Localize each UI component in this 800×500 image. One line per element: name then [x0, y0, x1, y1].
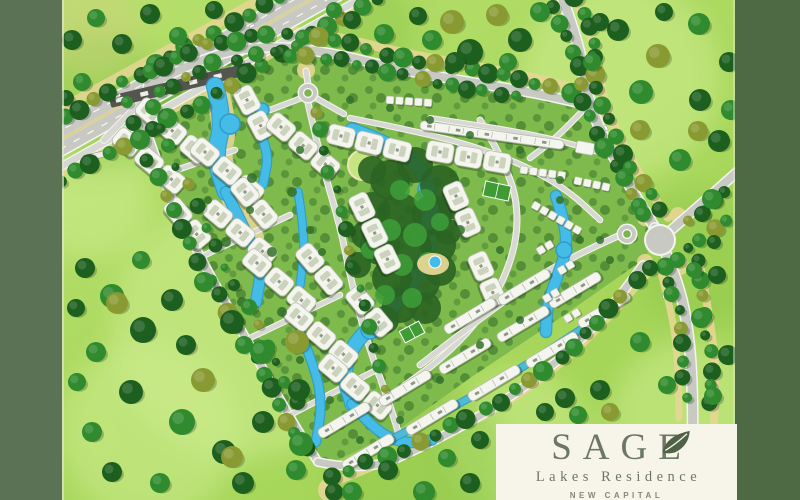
- tree-highlight: [233, 56, 238, 61]
- tree-highlight: [194, 371, 205, 382]
- tree-highlight: [637, 208, 644, 215]
- tree-highlight: [411, 9, 419, 17]
- tree-highlight: [171, 29, 179, 37]
- road-junction: [646, 226, 674, 254]
- logo-title: SAGE: [541, 427, 692, 468]
- lagoon: [556, 242, 572, 258]
- tree-highlight: [334, 187, 338, 191]
- logo-card: SAGE Lakes Residence NEW CAPITAL: [496, 424, 737, 500]
- left-frame-bar: [0, 0, 62, 500]
- tree-highlight: [428, 56, 436, 64]
- townhouse: [414, 98, 423, 107]
- tree-highlight: [237, 338, 245, 346]
- shrub: [476, 341, 484, 349]
- tree-highlight: [156, 59, 165, 68]
- tree-highlight: [489, 7, 499, 17]
- tree-highlight: [289, 463, 298, 472]
- tree-highlight: [458, 412, 467, 421]
- tree-highlight: [182, 46, 190, 54]
- tree-highlight: [358, 286, 362, 290]
- tree-highlight: [212, 88, 217, 93]
- tree-highlight: [691, 124, 700, 133]
- tree-highlight: [69, 165, 76, 172]
- tree-highlight: [581, 329, 586, 334]
- shrub: [306, 226, 314, 234]
- park-pool: [429, 256, 441, 268]
- tree-highlight: [434, 80, 439, 85]
- shrub: [606, 256, 614, 264]
- park-canopy-light: [390, 180, 410, 200]
- tree-highlight: [123, 98, 128, 103]
- tree-highlight: [105, 465, 114, 474]
- park-canopy-light: [431, 213, 449, 231]
- tree-highlight: [414, 57, 420, 63]
- tree-highlight: [693, 255, 699, 261]
- tree-highlight: [322, 167, 328, 173]
- tree-highlight: [89, 11, 97, 19]
- tree-highlight: [320, 147, 325, 152]
- tree-highlight: [595, 99, 603, 107]
- tree-highlight: [631, 273, 639, 281]
- tree-highlight: [172, 412, 184, 424]
- tree-highlight: [171, 52, 177, 58]
- roof-unit: [438, 150, 441, 153]
- tree-highlight: [243, 301, 250, 308]
- tree-highlight: [194, 67, 200, 73]
- shrub: [466, 131, 474, 139]
- tree-highlight: [616, 147, 625, 156]
- tree-highlight: [705, 365, 713, 373]
- shrub: [455, 225, 465, 235]
- tree-highlight: [572, 59, 581, 68]
- tree-highlight: [494, 396, 502, 404]
- tree-highlight: [657, 5, 665, 13]
- building-roof: [583, 178, 592, 187]
- tree-highlight: [208, 27, 215, 34]
- townhouse: [424, 99, 433, 108]
- tree-highlight: [706, 389, 714, 397]
- tree-highlight: [227, 15, 236, 24]
- building-roof: [395, 97, 403, 105]
- tree-highlight: [82, 157, 91, 166]
- tree-highlight: [564, 85, 573, 94]
- tree-highlight: [271, 48, 276, 53]
- shrub: [386, 104, 394, 112]
- logo-subtitle: Lakes Residence: [532, 469, 701, 486]
- shrub: [287, 187, 297, 197]
- tree-highlight: [311, 29, 320, 38]
- tree-highlight: [567, 47, 574, 54]
- tree-highlight: [706, 346, 712, 352]
- tree-highlight: [274, 400, 280, 406]
- tree-highlight: [85, 425, 94, 434]
- tree-highlight: [567, 341, 575, 349]
- tree-highlight: [88, 94, 94, 100]
- tree-highlight: [694, 235, 700, 241]
- tree-highlight: [633, 123, 642, 132]
- tree-highlight: [345, 13, 353, 21]
- tree-highlight: [258, 369, 265, 376]
- tree-highlight: [637, 176, 645, 184]
- tree-highlight: [654, 204, 661, 211]
- tree-highlight: [720, 188, 725, 193]
- tree-highlight: [416, 484, 426, 494]
- tree-highlight: [585, 111, 590, 116]
- tree-highlight: [511, 385, 516, 390]
- tree-highlight: [579, 9, 585, 15]
- shrub: [296, 356, 304, 364]
- shrub: [326, 396, 334, 404]
- building-roof: [601, 182, 610, 191]
- right-frame-bar: [735, 0, 800, 500]
- tree-highlight: [597, 140, 606, 149]
- tree-highlight: [625, 162, 631, 168]
- building-roof: [405, 97, 413, 105]
- tree-highlight: [618, 171, 626, 179]
- tree-highlight: [431, 431, 436, 436]
- tree-highlight: [632, 83, 643, 94]
- tree-highlight: [224, 449, 234, 459]
- shrub: [496, 246, 504, 254]
- tree-highlight: [711, 133, 721, 143]
- tree-highlight: [445, 419, 452, 426]
- tree-highlight: [659, 260, 667, 268]
- tree-highlight: [210, 240, 216, 246]
- tree-highlight: [280, 378, 285, 383]
- tree-highlight: [591, 128, 598, 135]
- tree-highlight: [425, 33, 434, 42]
- shrub: [277, 307, 287, 317]
- tree-highlight: [553, 17, 561, 25]
- tree-highlight: [417, 73, 424, 80]
- tree-highlight: [696, 208, 703, 215]
- tree-highlight: [167, 81, 174, 88]
- tree-highlight: [481, 66, 490, 75]
- tree-highlight: [152, 170, 160, 178]
- building-roof: [424, 99, 432, 107]
- tree-highlight: [325, 470, 333, 478]
- tree-highlight: [89, 345, 98, 354]
- shrub: [318, 248, 326, 256]
- tree-highlight: [145, 65, 152, 72]
- tree-highlight: [104, 148, 110, 154]
- tree-highlight: [627, 190, 632, 195]
- tree-highlight: [398, 70, 403, 75]
- tree-highlight: [194, 36, 199, 41]
- tree-highlight: [359, 456, 366, 463]
- townhouse: [395, 97, 404, 106]
- tree-highlight: [633, 335, 642, 344]
- building-roof: [573, 176, 582, 185]
- tree-highlight: [660, 378, 668, 386]
- tree-highlight: [191, 255, 199, 263]
- shrub: [426, 116, 434, 124]
- photo-edge-line: [62, 0, 64, 500]
- tree-highlight: [672, 152, 682, 162]
- tree-highlight: [523, 374, 530, 381]
- tree-highlight: [345, 485, 354, 494]
- tree-highlight: [709, 221, 717, 229]
- tree-highlight: [223, 313, 234, 324]
- roof-unit: [467, 155, 470, 158]
- tree-highlight: [722, 216, 727, 221]
- building-roof: [414, 98, 422, 106]
- tree-highlight: [694, 311, 703, 320]
- tree-highlight: [117, 140, 125, 148]
- tree-highlight: [216, 37, 223, 44]
- tree-highlight: [664, 278, 669, 283]
- park-canopy-light: [403, 223, 427, 247]
- tree-highlight: [591, 83, 597, 89]
- tree-highlight: [203, 224, 208, 229]
- townhouse: [386, 96, 395, 105]
- tree-highlight: [501, 55, 509, 63]
- shrub: [346, 96, 354, 104]
- tree-highlight: [691, 16, 701, 26]
- tree-highlight: [136, 69, 143, 76]
- screenshot-root: SAGE Lakes Residence NEW CAPITAL: [0, 0, 800, 500]
- tree-highlight: [721, 348, 730, 357]
- tree-highlight: [477, 86, 482, 91]
- tree-highlight: [414, 435, 422, 443]
- tree-highlight: [109, 295, 119, 305]
- townhouse: [538, 168, 548, 178]
- tree-highlight: [463, 476, 472, 485]
- shrub: [267, 247, 277, 257]
- tree-highlight: [340, 223, 347, 230]
- tree-highlight: [168, 204, 175, 211]
- tree-highlight: [226, 79, 233, 86]
- building-roof: [386, 96, 394, 104]
- roundabout-island: [624, 231, 631, 238]
- tree-highlight: [115, 37, 124, 46]
- tree-highlight: [363, 321, 370, 328]
- tree-highlight: [679, 357, 684, 362]
- tree-highlight: [380, 449, 389, 458]
- tree-highlight: [206, 56, 214, 64]
- shrub: [556, 176, 564, 184]
- townhouse: [405, 97, 414, 106]
- tree-highlight: [512, 72, 520, 80]
- tree-highlight: [382, 386, 386, 390]
- tree-highlight: [571, 408, 579, 416]
- tree-highlight: [253, 343, 264, 354]
- roundabout-island: [305, 90, 312, 97]
- tree-highlight: [230, 281, 235, 286]
- tree-highlight: [692, 92, 702, 102]
- tree-highlight: [538, 405, 546, 413]
- tree-highlight: [78, 261, 87, 270]
- tree-highlight: [381, 66, 389, 74]
- park-canopy-light: [375, 285, 395, 305]
- tree-highlight: [374, 361, 380, 367]
- tree-highlight: [666, 288, 673, 295]
- tree-highlight: [182, 106, 188, 112]
- shrub: [596, 236, 604, 244]
- clubhouse-building: [575, 141, 595, 156]
- tree-highlight: [255, 321, 260, 326]
- tree-highlight: [370, 344, 375, 349]
- tree-highlight: [557, 352, 563, 358]
- tree-highlight: [705, 192, 714, 201]
- tree-highlight: [222, 265, 226, 269]
- tree-highlight: [396, 50, 405, 59]
- tree-highlight: [440, 451, 448, 459]
- townhouse: [529, 167, 539, 177]
- tree-highlight: [322, 55, 327, 60]
- tree-highlight: [605, 114, 610, 119]
- shrub: [576, 236, 584, 244]
- tree-highlight: [328, 4, 335, 11]
- logo-tagline: NEW CAPITAL: [570, 491, 663, 500]
- tree-highlight: [128, 117, 135, 124]
- tree-highlight: [496, 89, 503, 96]
- tree-highlight: [203, 40, 208, 45]
- tree-highlight: [347, 262, 353, 268]
- tree-highlight: [344, 36, 352, 44]
- tree-highlight: [207, 3, 215, 11]
- park-canopy-light: [402, 288, 422, 308]
- tree-highlight: [141, 155, 147, 161]
- tree-highlight: [399, 446, 405, 452]
- tree-highlight: [533, 5, 542, 14]
- tree-highlight: [447, 79, 453, 85]
- tree-highlight: [381, 463, 390, 472]
- tree-highlight: [147, 101, 154, 108]
- tree-highlight: [280, 415, 288, 423]
- tree-highlight: [558, 391, 567, 400]
- lagoon: [220, 114, 240, 134]
- tree-highlight: [443, 13, 454, 24]
- tree-highlight: [184, 238, 190, 244]
- tree-highlight: [164, 292, 174, 302]
- logo-title-row: SAGE: [541, 429, 692, 466]
- building-roof: [539, 168, 548, 177]
- tree-highlight: [362, 45, 367, 50]
- tree-highlight: [684, 217, 689, 222]
- tree-highlight: [610, 22, 620, 32]
- shrub: [556, 196, 564, 204]
- tree-highlight: [250, 48, 257, 55]
- tree-highlight: [530, 80, 535, 85]
- townhouse: [520, 166, 530, 176]
- tree-highlight: [174, 221, 183, 230]
- tree-highlight: [562, 31, 567, 36]
- tree-highlight: [701, 332, 706, 337]
- tree-highlight: [312, 108, 317, 113]
- tree-highlight: [360, 301, 365, 306]
- tree-highlight: [615, 291, 621, 297]
- park-canopy-light: [414, 189, 436, 211]
- tree-highlight: [314, 123, 321, 130]
- park-canopy: [358, 156, 386, 184]
- tree-highlight: [320, 19, 329, 28]
- tree-highlight: [511, 31, 522, 42]
- building-roof: [548, 170, 557, 179]
- tree-highlight: [460, 83, 468, 91]
- tree-highlight: [133, 320, 145, 332]
- building-roof: [529, 167, 538, 176]
- tree-highlight: [155, 87, 160, 92]
- shrub: [516, 146, 524, 154]
- tree-highlight: [184, 180, 189, 185]
- tree-highlight: [367, 61, 373, 67]
- tree-highlight: [182, 73, 187, 78]
- tree-highlight: [336, 53, 343, 60]
- tree-highlight: [143, 7, 152, 16]
- tree-highlight: [163, 140, 169, 146]
- tree-highlight: [229, 34, 238, 43]
- tree-highlight: [512, 92, 517, 97]
- tree-highlight: [685, 244, 690, 249]
- tree-highlight: [377, 27, 386, 36]
- tree-highlight: [536, 364, 545, 373]
- tree-highlight: [173, 164, 177, 168]
- tree-highlight: [235, 475, 245, 485]
- tree-highlight: [576, 79, 582, 85]
- tree-highlight: [672, 254, 679, 261]
- tree-highlight: [291, 382, 301, 392]
- tree-highlight: [353, 61, 358, 66]
- tree-highlight: [255, 414, 265, 424]
- tree-highlight: [283, 29, 288, 34]
- tree-highlight: [710, 268, 718, 276]
- tree-highlight: [329, 35, 335, 41]
- tree-highlight: [197, 275, 206, 284]
- shrub: [356, 436, 364, 444]
- tree-highlight: [724, 103, 733, 112]
- tree-highlight: [157, 125, 162, 130]
- tree-highlight: [676, 323, 682, 329]
- minor-road: [306, 71, 308, 84]
- shrub: [396, 416, 404, 424]
- shrub: [296, 146, 304, 154]
- tree-highlight: [722, 55, 731, 64]
- tree-highlight: [299, 49, 307, 57]
- tree-highlight: [481, 403, 487, 409]
- tree-highlight: [644, 262, 651, 269]
- tree-highlight: [122, 383, 133, 394]
- tree-highlight: [675, 336, 683, 344]
- tree-highlight: [356, 0, 364, 8]
- tree-highlight: [285, 51, 291, 57]
- tree-highlight: [448, 55, 457, 64]
- tree-highlight: [590, 39, 595, 44]
- tree-highlight: [101, 86, 109, 94]
- tree-highlight: [147, 123, 154, 130]
- tree-highlight: [337, 207, 342, 212]
- tree-highlight: [585, 55, 593, 63]
- tree-highlight: [688, 264, 695, 271]
- tree-highlight: [344, 467, 349, 472]
- tree-highlight: [290, 428, 295, 433]
- tree-highlight: [610, 131, 617, 138]
- tree-highlight: [649, 47, 660, 58]
- tree-highlight: [683, 394, 688, 399]
- tree-highlight: [698, 291, 703, 296]
- tree-highlight: [195, 98, 203, 106]
- tree-highlight: [70, 375, 78, 383]
- tree-highlight: [593, 383, 602, 392]
- tree-highlight: [133, 132, 142, 141]
- tree-highlight: [591, 317, 598, 324]
- tree-highlight: [327, 485, 335, 493]
- tree-highlight: [633, 200, 640, 207]
- tree-highlight: [75, 75, 83, 83]
- tree-highlight: [134, 253, 142, 261]
- tree-highlight: [259, 28, 267, 36]
- tree-highlight: [583, 20, 591, 28]
